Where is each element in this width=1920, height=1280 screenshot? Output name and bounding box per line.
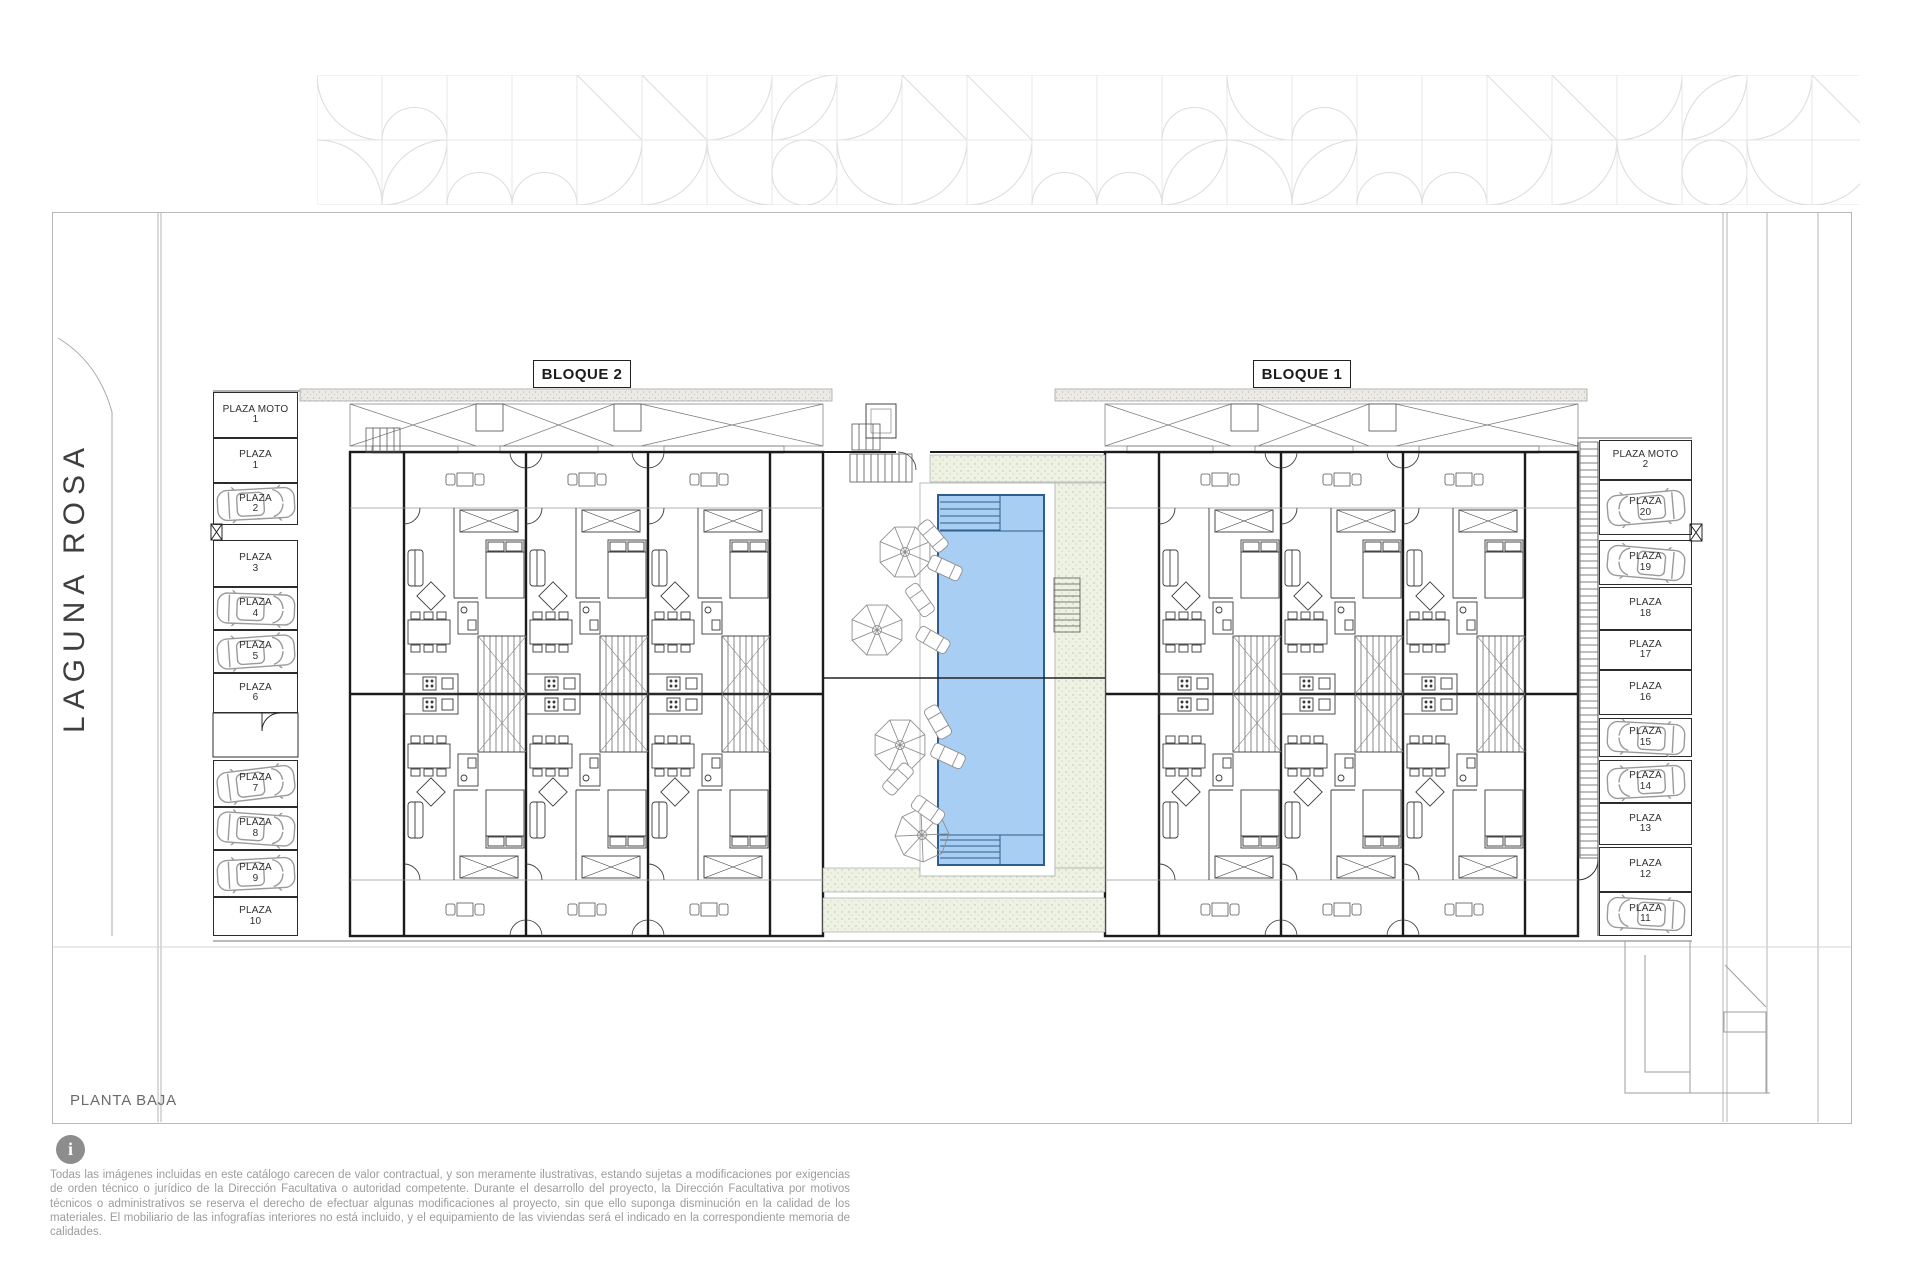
parking-stall-number: 3 bbox=[239, 564, 272, 575]
parking-stall-label: PLAZA 4 bbox=[239, 598, 272, 619]
parking-stall-number: 4 bbox=[239, 609, 272, 620]
parking-stall-number: 20 bbox=[1629, 508, 1662, 519]
parking-stall: PLAZA 11 bbox=[1599, 892, 1692, 936]
parking-stall: PLAZA 10 bbox=[213, 897, 298, 936]
parking-stall-number: 10 bbox=[239, 917, 272, 928]
parking-stall-label: PLAZA 3 bbox=[239, 553, 272, 574]
parking-stall-label: PLAZA 18 bbox=[1629, 598, 1662, 619]
parking-stall-name: PLAZA bbox=[1629, 497, 1662, 508]
parking-stall-name: PLAZA bbox=[239, 553, 272, 564]
parking-stall-label: PLAZA 8 bbox=[239, 818, 272, 839]
parking-stall-label: PLAZA 1 bbox=[239, 450, 272, 471]
parking-stall: PLAZA 16 bbox=[1599, 670, 1692, 715]
parking-stall-number: 2 bbox=[1613, 460, 1679, 471]
parking-stall-number: 19 bbox=[1629, 563, 1662, 574]
parking-stall: PLAZA 20 bbox=[1599, 480, 1692, 535]
parking-stall: PLAZA 17 bbox=[1599, 630, 1692, 670]
parking-stall-number: 18 bbox=[1629, 609, 1662, 620]
floor-label: PLANTA BAJA bbox=[70, 1092, 177, 1109]
parking-stall-label: PLAZA 7 bbox=[239, 773, 272, 794]
parking-stall: PLAZA MOTO 2 bbox=[1599, 440, 1692, 480]
parking-stall-number: 11 bbox=[1629, 914, 1662, 925]
parking-stall-name: PLAZA bbox=[1629, 682, 1662, 693]
parking-stall-number: 8 bbox=[239, 829, 272, 840]
parking-stall: PLAZA 7 bbox=[213, 760, 298, 807]
parking-stall: PLAZA 2 bbox=[213, 483, 298, 525]
parking-stall-number: 5 bbox=[239, 652, 272, 663]
parking-stall-number: 17 bbox=[1629, 650, 1662, 661]
parking-stall-name: PLAZA bbox=[1629, 771, 1662, 782]
parking-stall-number: 15 bbox=[1629, 738, 1662, 749]
parking-stall-label: PLAZA 13 bbox=[1629, 814, 1662, 835]
info-icon: i bbox=[56, 1135, 85, 1164]
parking-stall-number: 13 bbox=[1629, 824, 1662, 835]
parking-stall-number: 2 bbox=[239, 504, 272, 515]
parking-stall: PLAZA 1 bbox=[213, 438, 298, 483]
parking-stall: PLAZA 19 bbox=[1599, 540, 1692, 585]
parking-stall: PLAZA 18 bbox=[1599, 587, 1692, 630]
parking-stall-number: 12 bbox=[1629, 870, 1662, 881]
parking-stall-label: PLAZA 20 bbox=[1629, 497, 1662, 518]
parking-stall: PLAZA 12 bbox=[1599, 847, 1692, 892]
parking-stall-name: PLAZA bbox=[239, 773, 272, 784]
floorplan-page: LAGUNA ROSA BLOQUE 2 BLOQUE 1 PLANTA BAJ… bbox=[0, 0, 1920, 1280]
parking-stall-number: 14 bbox=[1629, 782, 1662, 793]
parking-stall-name: PLAZA bbox=[239, 641, 272, 652]
parking-stall: PLAZA 6 bbox=[213, 673, 298, 713]
parking-stall: PLAZA 3 bbox=[213, 540, 298, 587]
parking-stall-number: 6 bbox=[239, 693, 272, 704]
parking-stall-label: PLAZA 2 bbox=[239, 494, 272, 515]
parking-stall-name: PLAZA bbox=[239, 598, 272, 609]
parking-stall-label: PLAZA 12 bbox=[1629, 859, 1662, 880]
disclaimer-text: Todas las imágenes incluidas en este cat… bbox=[50, 1168, 850, 1239]
parking-stall: PLAZA 5 bbox=[213, 630, 298, 673]
parking-stall-label: PLAZA 15 bbox=[1629, 727, 1662, 748]
parking-stall-number: 7 bbox=[239, 784, 272, 795]
parking-stall-name: PLAZA bbox=[1629, 598, 1662, 609]
parking-stall-label: PLAZA 9 bbox=[239, 863, 272, 884]
parking-stall-name: PLAZA bbox=[1629, 552, 1662, 563]
parking-stall-name: PLAZA bbox=[239, 818, 272, 829]
parking-stall: PLAZA 13 bbox=[1599, 803, 1692, 845]
bloque-1-label: BLOQUE 1 bbox=[1253, 360, 1351, 388]
parking-stall-number: 9 bbox=[239, 874, 272, 885]
parking-stall-label: PLAZA 11 bbox=[1629, 904, 1662, 925]
parking-stall: PLAZA 4 bbox=[213, 587, 298, 630]
parking-stall-name: PLAZA bbox=[1629, 727, 1662, 738]
parking-stall-name: PLAZA bbox=[239, 450, 272, 461]
parking-stall-label: PLAZA 6 bbox=[239, 683, 272, 704]
street-name-label: LAGUNA ROSA bbox=[58, 401, 92, 773]
parking-stall-name: PLAZA bbox=[1629, 859, 1662, 870]
parking-stall: PLAZA 15 bbox=[1599, 718, 1692, 757]
parking-stall: PLAZA MOTO 1 bbox=[213, 392, 298, 438]
parking-stall-name: PLAZA bbox=[239, 906, 272, 917]
parking-stall-label: PLAZA 17 bbox=[1629, 640, 1662, 661]
parking-stall-label: PLAZA 10 bbox=[239, 906, 272, 927]
parking-stall-number: 1 bbox=[239, 461, 272, 472]
parking-stall-label: PLAZA MOTO 2 bbox=[1613, 450, 1679, 471]
parking-stall-number: 16 bbox=[1629, 693, 1662, 704]
parking-stall-name: PLAZA bbox=[239, 863, 272, 874]
bloque-2-label: BLOQUE 2 bbox=[533, 360, 631, 388]
plan-frame bbox=[52, 212, 1852, 1124]
parking-stall-label: PLAZA 16 bbox=[1629, 682, 1662, 703]
parking-stall: PLAZA 9 bbox=[213, 850, 298, 897]
parking-stall-label: PLAZA MOTO 1 bbox=[223, 405, 289, 426]
parking-stall-number: 1 bbox=[223, 415, 289, 426]
parking-stall-label: PLAZA 19 bbox=[1629, 552, 1662, 573]
parking-stall-label: PLAZA 5 bbox=[239, 641, 272, 662]
parking-stall-label: PLAZA 14 bbox=[1629, 771, 1662, 792]
parking-stall: PLAZA 14 bbox=[1599, 760, 1692, 803]
parking-stall: PLAZA 8 bbox=[213, 807, 298, 850]
decorative-pattern-band bbox=[317, 75, 1860, 205]
